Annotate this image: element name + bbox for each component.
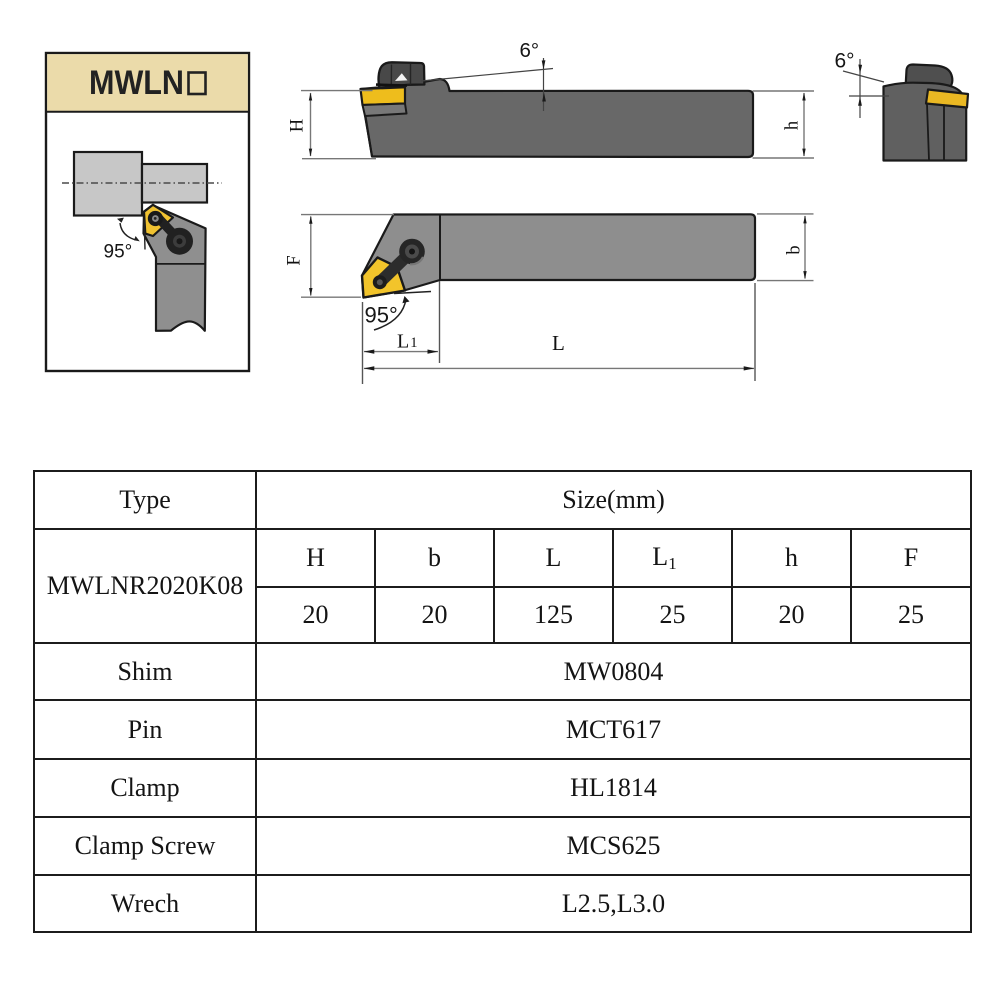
- svg-text:b: b: [785, 245, 805, 254]
- svg-text:L: L: [552, 331, 565, 355]
- svg-text:95°: 95°: [365, 303, 398, 328]
- svg-text:h: h: [783, 121, 803, 130]
- svg-text:6°: 6°: [835, 50, 855, 73]
- svg-text:F: F: [285, 255, 305, 265]
- svg-text:1: 1: [410, 335, 417, 351]
- svg-text:MWLN: MWLN: [89, 64, 184, 102]
- svg-text:H: H: [288, 119, 308, 132]
- svg-text:L: L: [397, 331, 409, 353]
- svg-text:6°: 6°: [520, 39, 540, 62]
- svg-text:95°: 95°: [104, 242, 133, 263]
